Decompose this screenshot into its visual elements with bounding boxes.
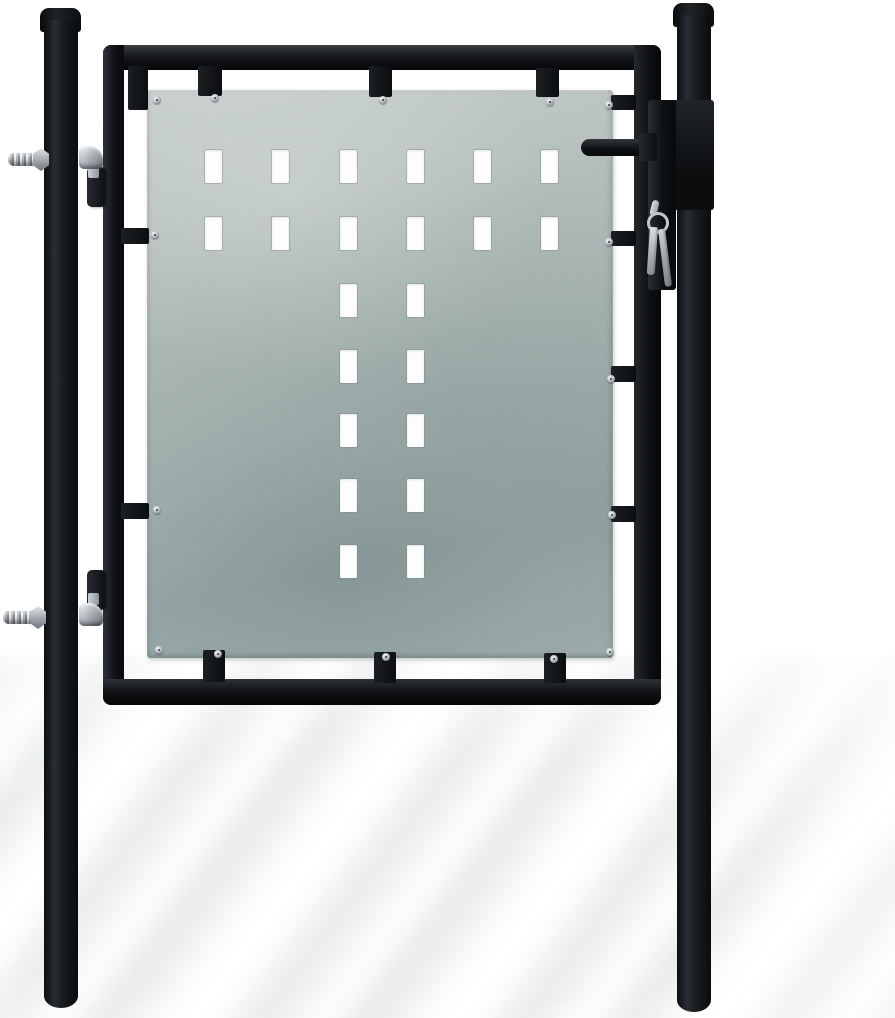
panel-screw: [606, 648, 614, 656]
panel-screw: [155, 646, 163, 654]
panel-screw: [546, 98, 554, 106]
handle-hub: [639, 133, 657, 161]
panel-screw: [153, 506, 161, 514]
panel-screw: [550, 655, 558, 663]
panel-screw: [153, 96, 161, 104]
panel-screw: [211, 94, 219, 102]
panel-screw: [214, 650, 222, 658]
panel-screw: [608, 511, 616, 519]
panel-screw: [151, 231, 159, 239]
panel-screw: [382, 653, 390, 661]
panel-screw: [605, 238, 613, 246]
panel-screw: [605, 101, 613, 109]
panel-screw: [607, 375, 615, 383]
panel-screws-layer: [0, 0, 895, 1018]
panel-screw: [379, 96, 387, 104]
product-photo-stage: [0, 0, 895, 1018]
